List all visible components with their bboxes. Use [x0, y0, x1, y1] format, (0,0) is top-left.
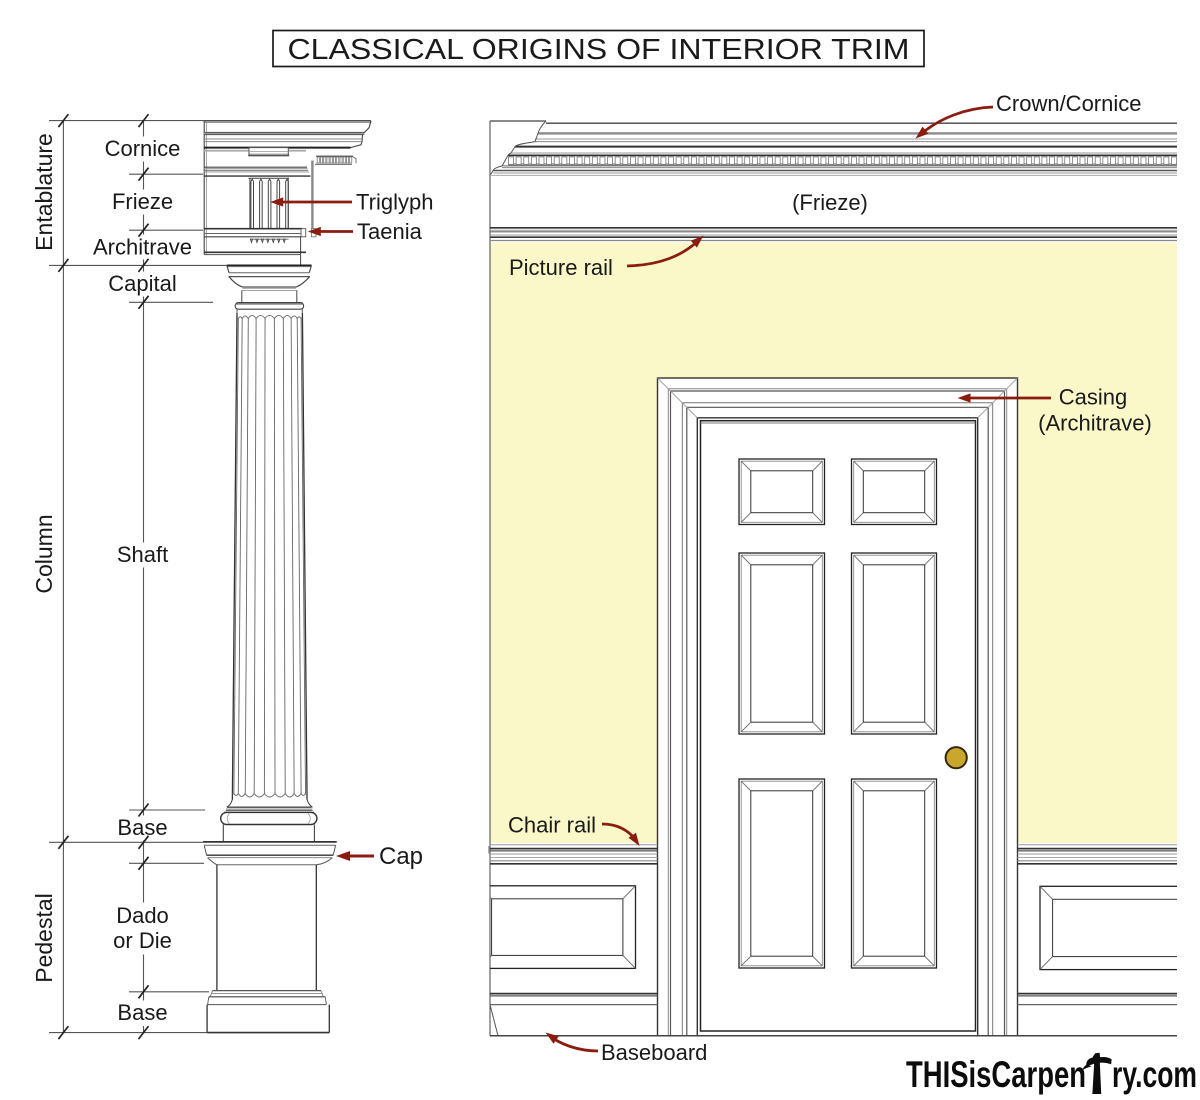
- svg-text:Column: Column: [31, 514, 57, 593]
- svg-text:Shaft: Shaft: [117, 542, 168, 567]
- svg-text:Base: Base: [117, 815, 167, 840]
- svg-text:CLASSICAL ORIGINS OF INTERIOR: CLASSICAL ORIGINS OF INTERIOR TRIM: [288, 34, 910, 66]
- svg-text:Cap: Cap: [379, 843, 423, 870]
- svg-text:Dado: Dado: [116, 903, 169, 928]
- svg-text:Crown/Cornice: Crown/Cornice: [996, 91, 1142, 116]
- svg-text:THISisCarpen: THISisCarpen: [906, 1054, 1086, 1095]
- svg-text:Picture rail: Picture rail: [509, 255, 613, 280]
- svg-text:Base: Base: [117, 1000, 167, 1025]
- svg-text:or Die: or Die: [113, 928, 172, 953]
- svg-text:Casing: Casing: [1059, 385, 1127, 410]
- svg-text:ry.com: ry.com: [1112, 1054, 1197, 1095]
- svg-text:Entablature: Entablature: [31, 133, 57, 251]
- svg-text:Taenia: Taenia: [357, 219, 423, 244]
- svg-text:Baseboard: Baseboard: [601, 1040, 707, 1065]
- svg-text:(Architrave): (Architrave): [1038, 411, 1152, 436]
- svg-text:Capital: Capital: [108, 271, 176, 296]
- svg-text:Pedestal: Pedestal: [31, 893, 57, 983]
- svg-text:Frieze: Frieze: [112, 189, 173, 214]
- svg-text:(Frieze): (Frieze): [792, 190, 868, 215]
- svg-text:Architrave: Architrave: [93, 235, 192, 260]
- svg-text:Chair rail: Chair rail: [508, 813, 596, 838]
- svg-text:Triglyph: Triglyph: [356, 190, 433, 215]
- svg-text:Cornice: Cornice: [105, 136, 181, 161]
